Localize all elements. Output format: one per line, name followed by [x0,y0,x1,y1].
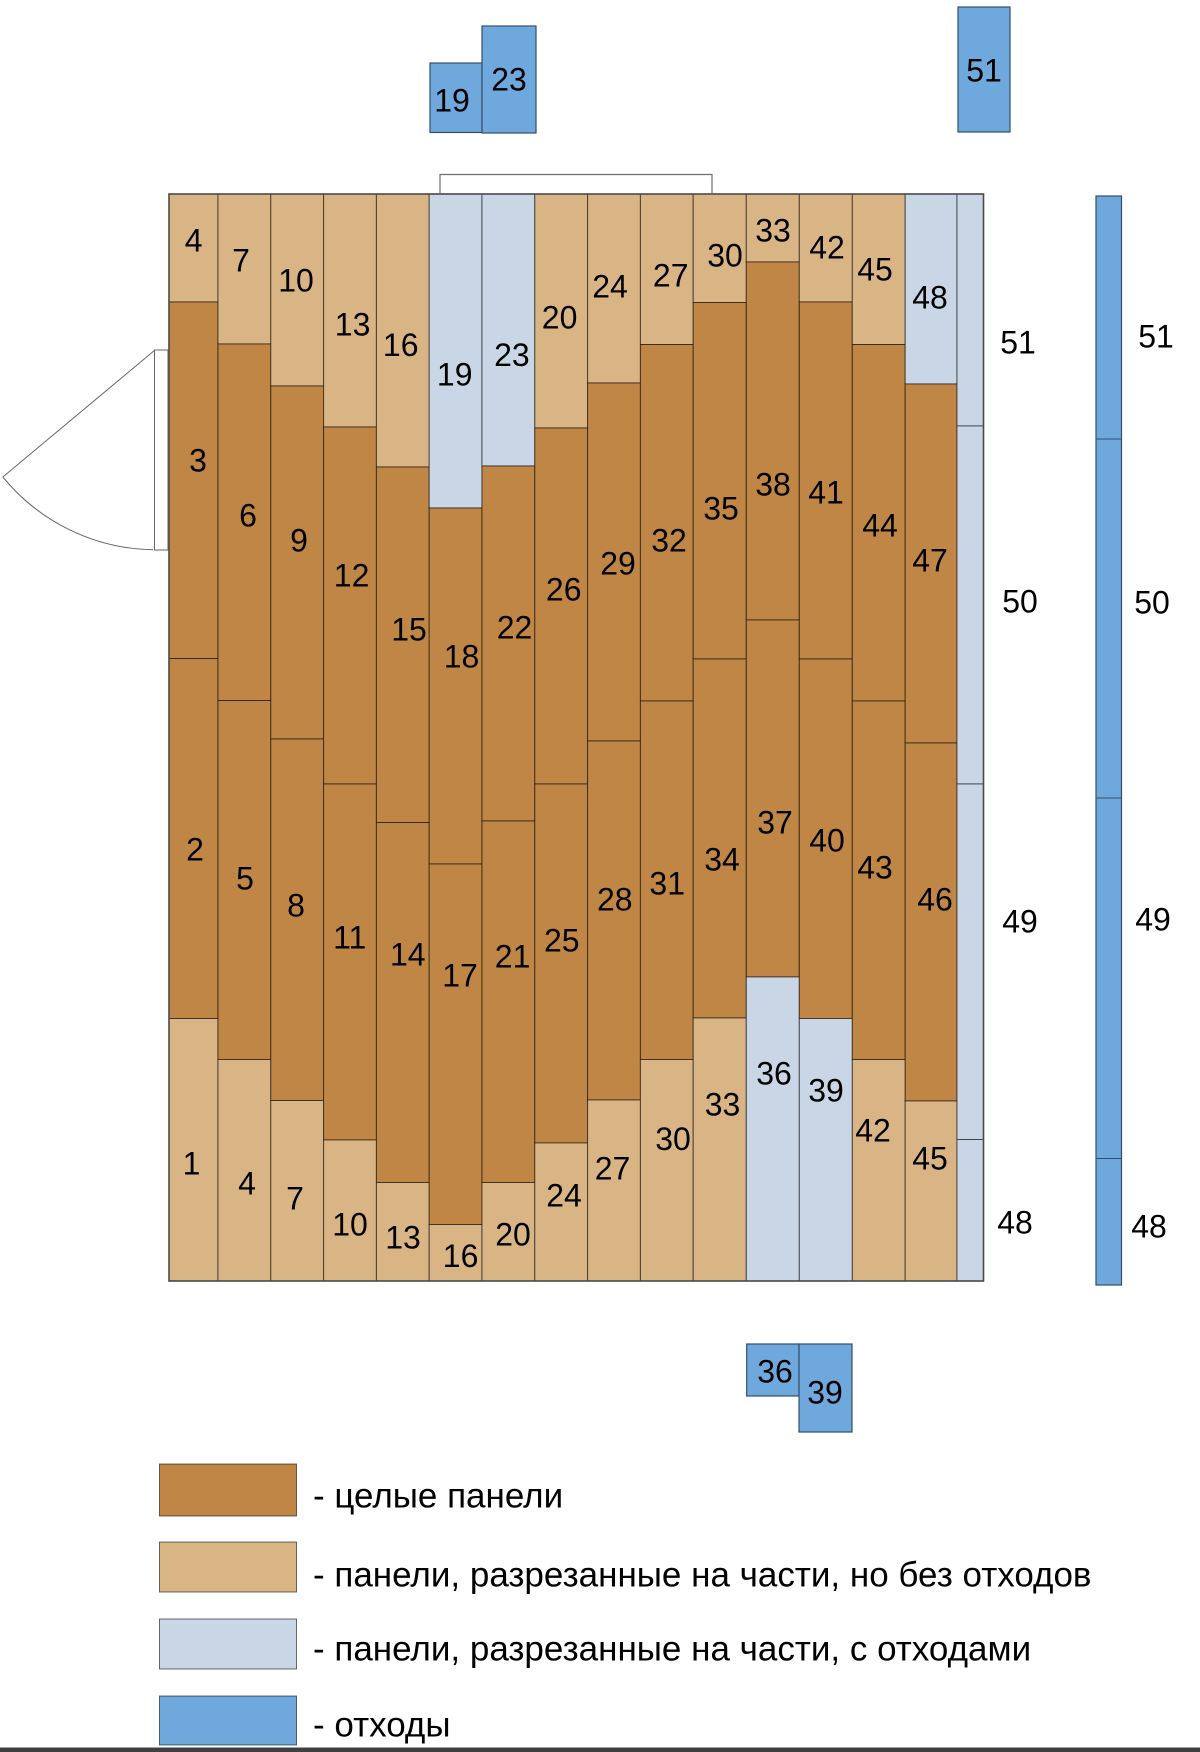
svg-text:12: 12 [334,558,370,594]
svg-text:47: 47 [912,543,948,579]
svg-text:19: 19 [434,83,470,119]
svg-text:36: 36 [757,1354,793,1390]
svg-text:14: 14 [390,937,426,973]
svg-text:39: 39 [807,1375,843,1411]
svg-text:31: 31 [649,866,685,902]
svg-text:5: 5 [236,861,254,897]
svg-text:41: 41 [808,475,844,511]
svg-text:- целые панели: - целые панели [313,1477,563,1516]
svg-text:33: 33 [755,213,791,249]
svg-text:4: 4 [238,1166,256,1202]
svg-text:10: 10 [332,1207,368,1243]
svg-text:34: 34 [704,842,740,878]
svg-text:16: 16 [443,1238,479,1274]
svg-text:40: 40 [809,823,845,859]
svg-text:8: 8 [287,888,305,924]
svg-text:6: 6 [239,498,257,534]
svg-text:38: 38 [755,467,791,503]
svg-text:23: 23 [491,62,527,98]
svg-text:28: 28 [597,882,633,918]
svg-text:- панели, разрезанные на части: - панели, разрезанные на части, но без о… [313,1556,1092,1595]
svg-text:20: 20 [495,1217,531,1253]
svg-text:36: 36 [756,1056,792,1092]
svg-text:19: 19 [437,356,473,392]
svg-text:42: 42 [809,230,845,266]
svg-text:13: 13 [335,307,371,343]
svg-text:33: 33 [705,1087,741,1123]
svg-text:- панели, разрезанные на части: - панели, разрезанные на части, с отхода… [313,1630,1031,1669]
svg-text:45: 45 [912,1141,948,1177]
svg-text:9: 9 [290,523,308,559]
svg-text:3: 3 [189,443,207,479]
svg-text:24: 24 [592,269,628,305]
svg-text:29: 29 [600,546,636,582]
svg-text:16: 16 [383,327,419,363]
svg-text:43: 43 [857,850,893,886]
svg-text:51: 51 [1138,319,1174,355]
svg-text:51: 51 [1000,325,1036,361]
svg-text:- отходы: - отходы [313,1706,451,1745]
svg-text:49: 49 [1002,904,1038,940]
svg-text:32: 32 [651,523,687,559]
svg-text:7: 7 [286,1181,304,1217]
svg-text:7: 7 [232,242,250,278]
svg-text:25: 25 [544,923,580,959]
svg-text:24: 24 [546,1178,582,1214]
svg-text:18: 18 [444,639,480,675]
svg-text:30: 30 [655,1121,691,1157]
svg-text:26: 26 [546,572,582,608]
svg-text:45: 45 [857,252,893,288]
svg-text:39: 39 [808,1073,844,1109]
svg-text:27: 27 [653,257,689,293]
svg-text:17: 17 [442,958,478,994]
svg-text:4: 4 [185,223,203,259]
svg-text:11: 11 [333,920,366,956]
svg-text:44: 44 [862,508,898,544]
svg-text:51: 51 [966,53,1002,89]
svg-text:27: 27 [595,1151,631,1187]
svg-text:37: 37 [757,805,793,841]
svg-text:23: 23 [494,337,530,373]
svg-text:48: 48 [997,1205,1033,1241]
svg-text:15: 15 [391,612,427,648]
svg-text:35: 35 [703,491,739,527]
svg-text:21: 21 [495,939,531,975]
svg-text:50: 50 [1134,585,1170,621]
svg-text:48: 48 [912,280,948,316]
svg-text:46: 46 [917,882,953,918]
svg-text:30: 30 [707,238,743,274]
svg-text:42: 42 [855,1113,891,1149]
svg-text:13: 13 [385,1220,421,1256]
svg-text:1: 1 [183,1146,201,1182]
svg-text:22: 22 [497,610,533,646]
svg-text:20: 20 [542,300,578,336]
svg-text:10: 10 [278,263,314,299]
svg-text:48: 48 [1131,1209,1167,1245]
svg-text:49: 49 [1135,902,1171,938]
svg-text:50: 50 [1002,584,1038,620]
svg-text:2: 2 [186,832,204,868]
